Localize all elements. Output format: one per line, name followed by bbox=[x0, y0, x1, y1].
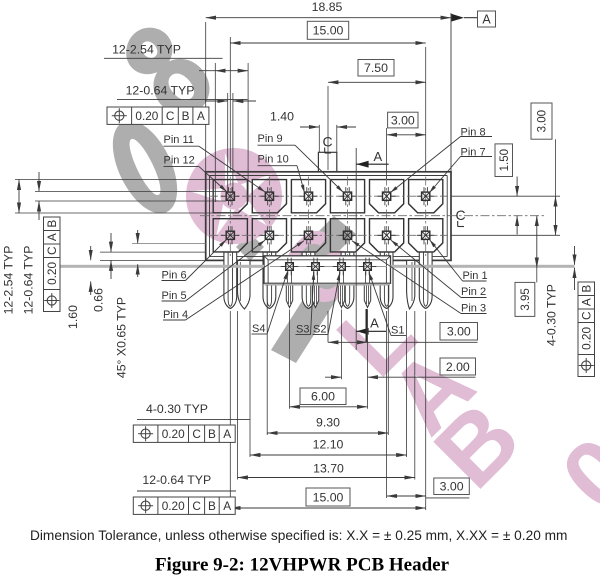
svg-text:C: C bbox=[192, 427, 201, 441]
svg-text:6.00: 6.00 bbox=[311, 390, 335, 404]
svg-text:0.20: 0.20 bbox=[162, 427, 185, 441]
svg-text:3.00: 3.00 bbox=[440, 480, 464, 494]
svg-text:12.10: 12.10 bbox=[313, 438, 344, 452]
svg-text:S1: S1 bbox=[391, 325, 404, 337]
svg-text:9.30: 9.30 bbox=[316, 416, 340, 430]
svg-text:Pin 2: Pin 2 bbox=[461, 286, 486, 298]
svg-text:C: C bbox=[455, 207, 465, 223]
svg-text:3.00: 3.00 bbox=[391, 114, 415, 128]
svg-text:B: B bbox=[580, 285, 594, 293]
svg-text:15.00: 15.00 bbox=[313, 490, 344, 504]
svg-text:2.00: 2.00 bbox=[446, 360, 470, 374]
svg-text:S2: S2 bbox=[313, 324, 326, 336]
svg-text:13.70: 13.70 bbox=[313, 462, 344, 476]
svg-text:A: A bbox=[373, 149, 382, 164]
svg-text:12-2.54 TYP: 12-2.54 TYP bbox=[2, 246, 16, 315]
svg-text:C: C bbox=[45, 246, 59, 255]
svg-text:18.85: 18.85 bbox=[312, 0, 343, 14]
svg-text:4-0.30 TYP: 4-0.30 TYP bbox=[146, 402, 208, 416]
svg-text:45° X0.65 TYP: 45° X0.65 TYP bbox=[115, 297, 129, 378]
svg-text:12-2.54 TYP: 12-2.54 TYP bbox=[112, 43, 181, 57]
svg-text:15.00: 15.00 bbox=[313, 24, 344, 38]
svg-text:Pin 12: Pin 12 bbox=[164, 155, 195, 167]
svg-text:1.50: 1.50 bbox=[499, 149, 511, 171]
svg-text:Pin 6: Pin 6 bbox=[162, 270, 187, 282]
svg-text:Figure 9-2: 12VHPWR PCB Heade: Figure 9-2: 12VHPWR PCB Header bbox=[155, 555, 450, 576]
svg-text:0.66: 0.66 bbox=[92, 288, 106, 312]
svg-text:Pin 10: Pin 10 bbox=[258, 154, 289, 166]
svg-text:A: A bbox=[197, 109, 205, 123]
svg-text:A: A bbox=[45, 233, 59, 241]
svg-text:Pin 4: Pin 4 bbox=[163, 309, 188, 321]
svg-text:3.00: 3.00 bbox=[537, 110, 549, 132]
svg-text:12-0.64 TYP: 12-0.64 TYP bbox=[22, 246, 36, 315]
svg-text:0.20: 0.20 bbox=[135, 109, 158, 123]
svg-text:1.40: 1.40 bbox=[270, 110, 294, 124]
svg-text:S3: S3 bbox=[296, 324, 309, 336]
svg-text:C: C bbox=[580, 311, 594, 320]
svg-text:7.50: 7.50 bbox=[364, 61, 388, 75]
svg-text:A: A bbox=[223, 499, 231, 513]
svg-text:C: C bbox=[166, 109, 175, 123]
svg-text:0.20: 0.20 bbox=[579, 327, 593, 350]
svg-text:A: A bbox=[482, 13, 491, 27]
svg-text:A: A bbox=[370, 316, 379, 331]
svg-text:3.00: 3.00 bbox=[447, 325, 471, 339]
svg-text:1.60: 1.60 bbox=[66, 305, 80, 329]
svg-text:3.95: 3.95 bbox=[520, 288, 532, 310]
svg-text:0.20: 0.20 bbox=[162, 499, 185, 513]
svg-text:Pin 5: Pin 5 bbox=[162, 290, 187, 302]
svg-text:A: A bbox=[579, 298, 593, 306]
svg-text:A: A bbox=[223, 427, 231, 441]
svg-text:12-0.64 TYP: 12-0.64 TYP bbox=[126, 84, 195, 98]
svg-text:B: B bbox=[208, 499, 216, 513]
svg-text:Dimension Tolerance, unless ot: Dimension Tolerance, unless otherwise sp… bbox=[30, 528, 567, 543]
svg-text:12-0.64 TYP: 12-0.64 TYP bbox=[142, 473, 211, 487]
svg-text:C: C bbox=[322, 134, 332, 150]
svg-text:4-0.30 TYP: 4-0.30 TYP bbox=[545, 284, 559, 346]
svg-text:B: B bbox=[208, 427, 216, 441]
svg-text:Pin 9: Pin 9 bbox=[258, 133, 283, 145]
svg-text:C: C bbox=[192, 499, 201, 513]
svg-text:0.20: 0.20 bbox=[45, 262, 59, 285]
svg-text:B: B bbox=[45, 220, 59, 228]
svg-text:Pin 11: Pin 11 bbox=[164, 134, 194, 146]
svg-text:Pin 1: Pin 1 bbox=[463, 270, 488, 282]
svg-text:Pin 3: Pin 3 bbox=[461, 303, 486, 315]
svg-text:B: B bbox=[182, 109, 190, 123]
svg-text:S4: S4 bbox=[252, 323, 265, 335]
